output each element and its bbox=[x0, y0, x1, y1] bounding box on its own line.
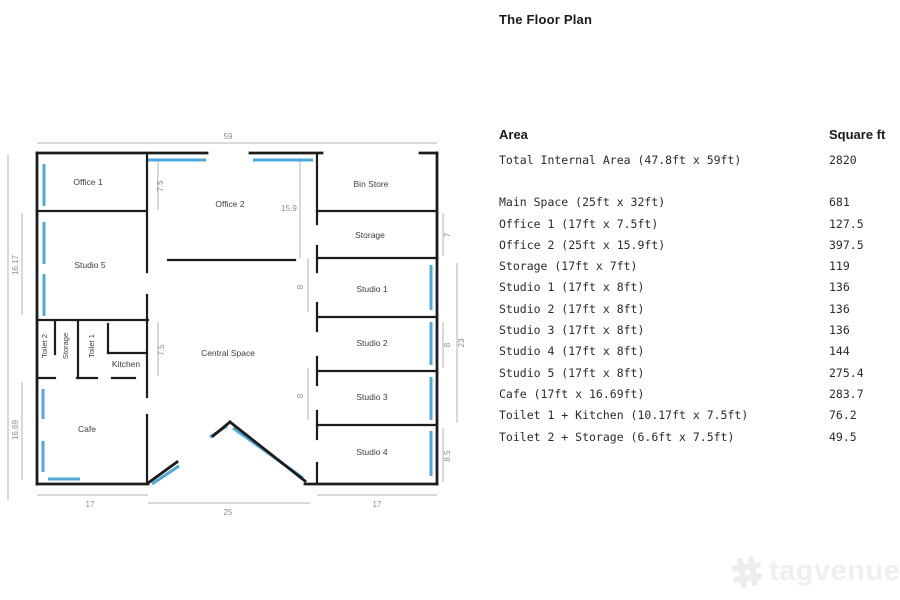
column-header-square-ft: Square ft bbox=[829, 127, 891, 153]
area-cell: Toilet 2 + Storage (6.6ft x 7.5ft) bbox=[499, 430, 734, 451]
area-cell: Main Space (25ft x 32ft) bbox=[499, 195, 665, 216]
room-label-studio-4: Studio 4 bbox=[356, 447, 387, 457]
dim-label-8-studio1: 8 bbox=[296, 284, 305, 289]
sqft-cell: 2820 bbox=[829, 153, 891, 174]
sqft-cell: 681 bbox=[829, 195, 891, 216]
table-row: Studio 5 (17ft x 8ft) 275.4 bbox=[499, 366, 891, 387]
watermark: tagvenue bbox=[731, 555, 900, 588]
sqft-cell: 136 bbox=[829, 302, 891, 323]
room-label-studio-5: Studio 5 bbox=[74, 260, 105, 270]
sqft-cell: 76.2 bbox=[829, 408, 891, 429]
watermark-text: tagvenue bbox=[769, 555, 900, 588]
floor-plan-svg: Office 1 Office 2 Bin Store Storage Stud… bbox=[0, 0, 480, 540]
dim-label-25: 25 bbox=[224, 508, 233, 517]
room-label-studio-2: Studio 2 bbox=[356, 338, 387, 348]
column-header-area: Area bbox=[499, 127, 528, 153]
room-label-bin-store: Bin Store bbox=[354, 179, 389, 189]
table-row: Studio 2 (17ft x 8ft) 136 bbox=[499, 302, 891, 323]
table-row-total: Total Internal Area (47.8ft x 59ft) 2820 bbox=[499, 153, 891, 174]
table-row: Studio 4 (17ft x 8ft) 144 bbox=[499, 344, 891, 365]
dim-label-23: 23 bbox=[457, 338, 466, 347]
table-row: Main Space (25ft x 32ft) 681 bbox=[499, 195, 891, 216]
room-label-cafe: Cafe bbox=[78, 424, 96, 434]
sqft-cell: 49.5 bbox=[829, 430, 891, 451]
room-label-storage-strip: Storage bbox=[61, 333, 70, 359]
dim-label-17-right: 17 bbox=[373, 500, 382, 509]
dim-label-15-9: 15.9 bbox=[281, 204, 297, 213]
page-title: The Floor Plan bbox=[499, 12, 592, 27]
dim-label-8-5: 8.5 bbox=[443, 450, 452, 462]
sqft-cell: 136 bbox=[829, 280, 891, 301]
dim-label-8-studio2: 8 bbox=[443, 342, 452, 347]
table-row: Storage (17ft x 7ft) 119 bbox=[499, 259, 891, 280]
table-row: Toilet 1 + Kitchen (10.17ft x 7.5ft) 76.… bbox=[499, 408, 891, 429]
area-cell: Cafe (17ft x 16.69ft) bbox=[499, 387, 644, 408]
sqft-cell: 397.5 bbox=[829, 238, 891, 259]
sqft-cell: 275.4 bbox=[829, 366, 891, 387]
table-header: Area Square ft bbox=[499, 127, 891, 153]
table-row: Office 2 (25ft x 15.9ft) 397.5 bbox=[499, 238, 891, 259]
room-label-office-2: Office 2 bbox=[215, 199, 244, 209]
table-row: Cafe (17ft x 16.69ft) 283.7 bbox=[499, 387, 891, 408]
dim-label-16-17: 16.17 bbox=[11, 254, 20, 275]
room-label-central-space: Central Space bbox=[201, 348, 255, 358]
tagvenue-logo-icon bbox=[731, 556, 763, 588]
room-label-studio-1: Studio 1 bbox=[356, 284, 387, 294]
area-cell: Studio 2 (17ft x 8ft) bbox=[499, 302, 644, 323]
area-cell: Studio 1 (17ft x 8ft) bbox=[499, 280, 644, 301]
dim-label-7-5-office: 7.5 bbox=[156, 180, 165, 192]
room-label-kitchen: Kitchen bbox=[112, 359, 141, 369]
dim-label-7: 7 bbox=[443, 232, 452, 237]
area-cell: Total Internal Area (47.8ft x 59ft) bbox=[499, 153, 741, 174]
dim-label-17-left: 17 bbox=[86, 500, 95, 509]
floor-plan-page: { "title": "The Floor Plan", "table": { … bbox=[0, 0, 900, 600]
area-cell: Office 1 (17ft x 7.5ft) bbox=[499, 217, 658, 238]
sqft-cell: 127.5 bbox=[829, 217, 891, 238]
table-gap bbox=[499, 174, 891, 195]
sqft-cell: 283.7 bbox=[829, 387, 891, 408]
area-cell: Office 2 (25ft x 15.9ft) bbox=[499, 238, 665, 259]
table-row: Studio 1 (17ft x 8ft) 136 bbox=[499, 280, 891, 301]
dimension-lines bbox=[8, 143, 457, 503]
sqft-cell: 119 bbox=[829, 259, 891, 280]
dim-label-16-69: 16.69 bbox=[11, 419, 20, 440]
room-label-storage-top: Storage bbox=[355, 230, 385, 240]
dim-label-59: 59 bbox=[224, 132, 233, 141]
table-row: Office 1 (17ft x 7.5ft) 127.5 bbox=[499, 217, 891, 238]
area-table: Area Square ft Total Internal Area (47.8… bbox=[499, 127, 891, 451]
room-label-office-1: Office 1 bbox=[73, 177, 102, 187]
sqft-cell: 144 bbox=[829, 344, 891, 365]
dimension-labels: 59 7.5 15.9 7 23 8 8.5 8 8 7.5 16.17 16.… bbox=[11, 132, 466, 517]
room-label-toilet-1: Toilet 1 bbox=[87, 334, 96, 358]
table-row: Studio 3 (17ft x 8ft) 136 bbox=[499, 323, 891, 344]
room-label-studio-3: Studio 3 bbox=[356, 392, 387, 402]
area-cell: Studio 4 (17ft x 8ft) bbox=[499, 344, 644, 365]
area-cell: Storage (17ft x 7ft) bbox=[499, 259, 637, 280]
sqft-cell: 136 bbox=[829, 323, 891, 344]
dim-label-7-5-kitchen: 7.5 bbox=[157, 344, 166, 356]
table-row: Toilet 2 + Storage (6.6ft x 7.5ft) 49.5 bbox=[499, 430, 891, 451]
area-cell: Toilet 1 + Kitchen (10.17ft x 7.5ft) bbox=[499, 408, 748, 429]
area-cell: Studio 3 (17ft x 8ft) bbox=[499, 323, 644, 344]
area-cell: Studio 5 (17ft x 8ft) bbox=[499, 366, 644, 387]
room-label-toilet-2: Toilet 2 bbox=[40, 334, 49, 358]
dim-label-8-studio3: 8 bbox=[296, 393, 305, 398]
